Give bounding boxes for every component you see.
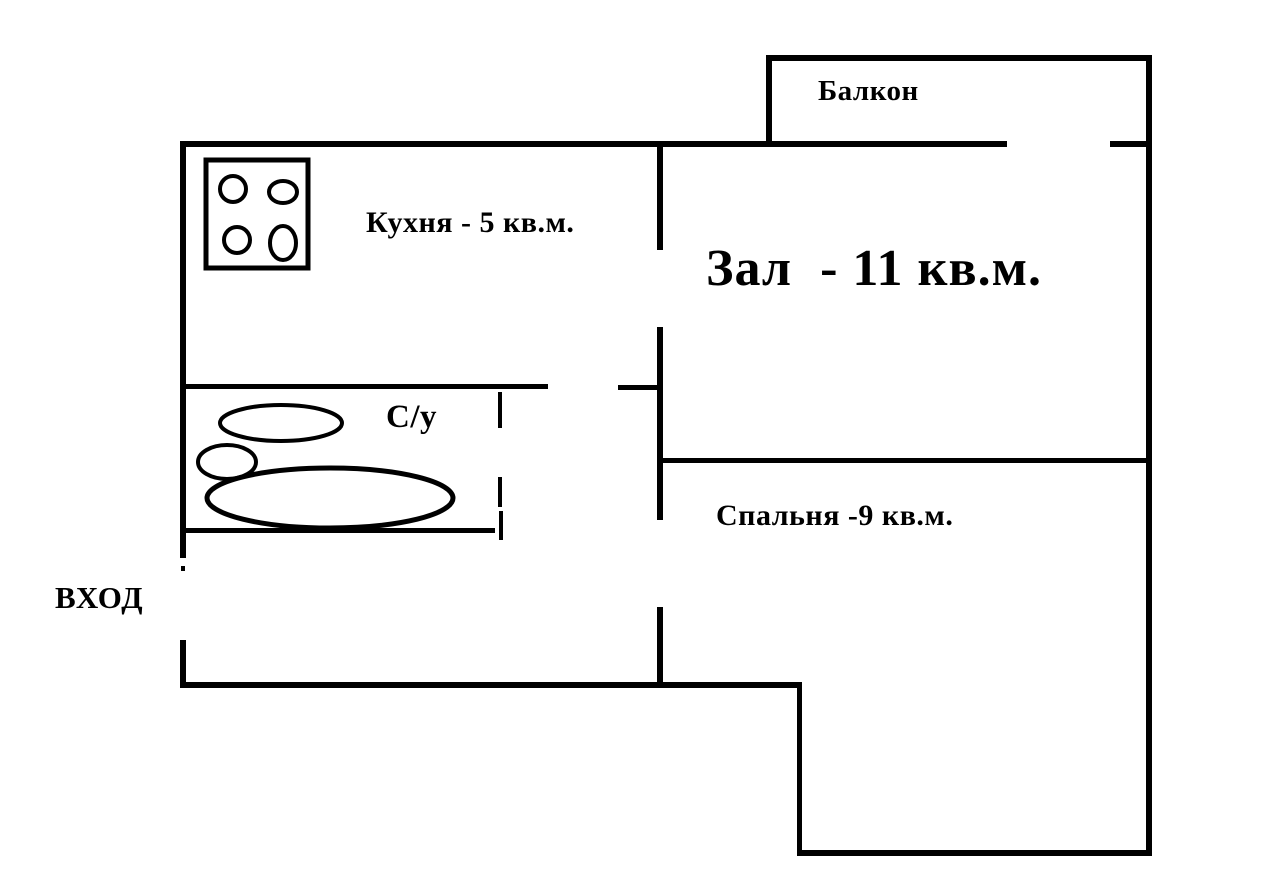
wall-bottom-main [180,682,802,688]
central-wall-lower [657,607,663,688]
wall-left-dot [181,566,185,571]
kitchen-label: Кухня - 5 кв.м. [366,206,574,239]
extension-left-wall [797,682,802,856]
bathtub-oval-icon [207,468,453,528]
wall-top-right-segment [1110,141,1152,147]
kitchen-bathroom-wall [180,384,548,389]
hall-bedroom-wall [660,458,1150,463]
entrance-label: ВХОД [55,581,144,615]
wall-bottom-extension [797,850,1152,856]
central-wall-middle [657,327,663,520]
balcony-top-wall [766,55,1152,61]
balcony-label: Балкон [818,76,919,108]
central-wall-upper [657,143,663,250]
wall-top-left-segment [180,141,1007,147]
hall-label: Зал - 11 кв.м. [706,240,1042,297]
wall-right [1146,55,1152,856]
floor-plan: Балкон Кухня - 5 кв.м. Зал - 11 кв.м. С/… [0,0,1280,895]
bathroom-dashed-wall-segment [498,392,502,428]
sink-oval-icon [220,405,342,441]
bathroom-label: С/у [386,399,437,435]
bathroom-dashed-wall-segment [498,477,502,507]
stove-four-burners-icon [206,160,308,268]
bedroom-label: Спальня -9 кв.м. [716,499,953,532]
wall-left-lower [180,640,186,688]
wall-left-upper [180,141,186,558]
balcony-left-wall [766,55,772,147]
walls [180,55,1152,856]
bathroom-dashed-wall-segment [499,511,503,540]
floor-plan-canvas [0,0,1280,895]
bathroom-wall-stub [618,385,660,390]
